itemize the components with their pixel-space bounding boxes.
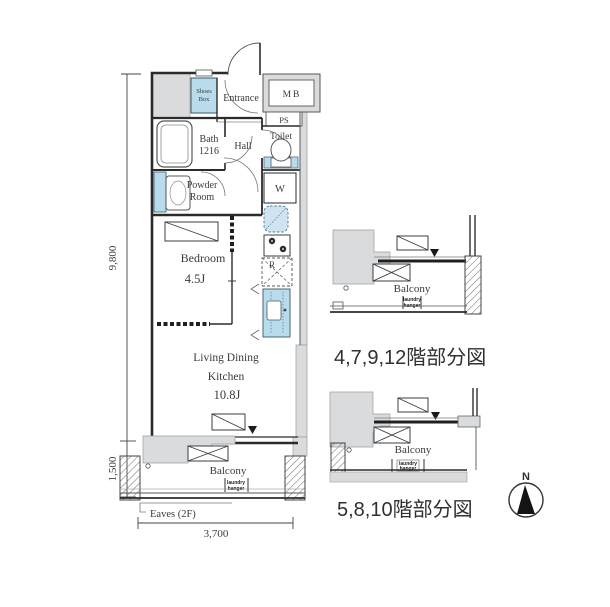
bath-room: Bath 1216 [157,121,219,167]
living-dining-kitchen: Living Dining Kitchen 10.8J [193,352,259,434]
kitchen-sink-unit [264,206,288,232]
stove [264,235,290,256]
level-marker-icon [430,249,439,257]
entrance-label: Entrance [223,93,259,104]
toilet-bowl [271,139,291,161]
bathtub [157,121,192,167]
balcony-label: Balcony [210,465,247,477]
svg-text:1216: 1216 [199,146,219,157]
partial-plan-1-caption: 4,7,9,12階部分図 [334,346,486,369]
dimension-left: 9,800 1,500 [107,74,141,497]
balcony-main: Balcony laundry hanger [120,436,305,500]
partial-plan-2-caption: 5,8,10階部分図 [337,498,473,521]
svg-text:Kitchen: Kitchen [208,371,245,383]
svg-text:Box: Box [199,96,211,103]
powder-room: Powder Room [154,172,218,212]
meter-box-room: MB [263,74,320,112]
svg-text:4.5J: 4.5J [185,272,206,286]
hall-label: Hall [234,141,251,152]
level-marker-icon [248,426,257,434]
partial-plan-1: Balcony laundry hanger 4,7,9,12階部分図 [330,215,486,369]
dim-height-main: 9,800 [107,245,119,270]
svg-text:Bath: Bath [200,134,219,145]
floor-plan-page: 9,800 1,500 MB PS Shoes [0,0,610,607]
bedroom: Bedroom 4.5J [157,216,236,324]
balcony-label: Balcony [394,283,431,295]
main-floor-plan: 9,800 1,500 MB PS Shoes [107,43,320,540]
svg-text:Powder: Powder [187,180,218,191]
washer-space: W [264,173,296,203]
meter-box-label: MB [283,90,302,100]
kitchen-units: R [251,206,292,340]
svg-text:Living Dining: Living Dining [193,352,259,364]
floor-plan-graphic: 9,800 1,500 MB PS Shoes [0,0,610,607]
toilet-room: Toilet [264,132,298,168]
dim-height-balcony: 1,500 [107,456,119,481]
svg-text:R: R [269,260,275,270]
shoes-box: Shoes Box [191,78,217,113]
drain [347,448,351,452]
dimension-bottom: 3,700 [138,517,293,540]
dim-width: 3,700 [204,528,229,540]
svg-text:Bedroom: Bedroom [181,251,226,265]
eaves-label: Eaves (2F) [150,509,196,520]
compass: N [509,471,543,517]
eaves-note: Eaves (2F) [140,503,232,520]
wall-right-upper [300,112,307,345]
svg-text:Shoes: Shoes [196,88,212,95]
level-marker-icon [431,412,440,420]
svg-text:W: W [275,184,285,195]
pipe-space-label: PS [279,115,289,125]
svg-text:10.8J: 10.8J [214,388,241,402]
svg-text:Room: Room [190,192,215,203]
wall-right-lower [296,345,307,437]
pipe-space-room: PS [266,112,302,126]
refrigerator-space: R [262,258,292,286]
drain [146,464,150,468]
partial-plan-2: Balcony laundry hanger 5,8,10階部分図 [330,388,480,521]
wall-mass-top-left [152,73,190,118]
pillar-right [465,256,481,314]
drain [344,286,348,290]
balcony-label: Balcony [395,444,432,456]
svg-text:hanger: hanger [400,466,417,472]
kitchen-counter [263,289,290,337]
compass-north-label: N [522,471,530,483]
